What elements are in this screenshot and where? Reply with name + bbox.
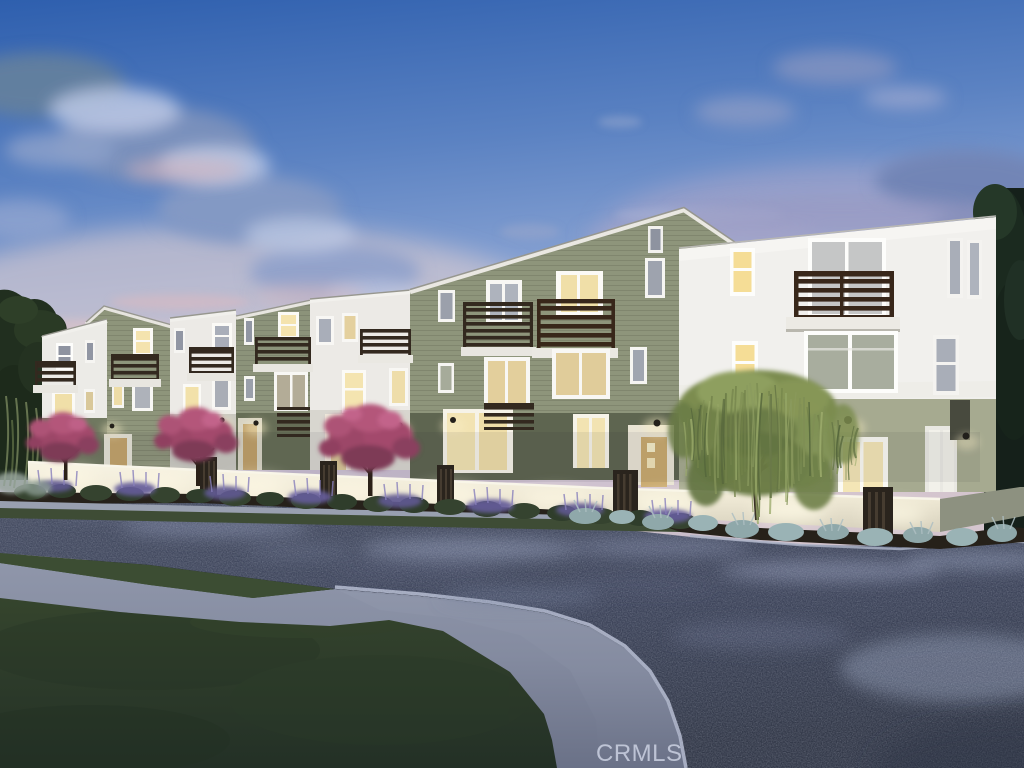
svg-text:CRMLS: CRMLS: [596, 740, 683, 767]
